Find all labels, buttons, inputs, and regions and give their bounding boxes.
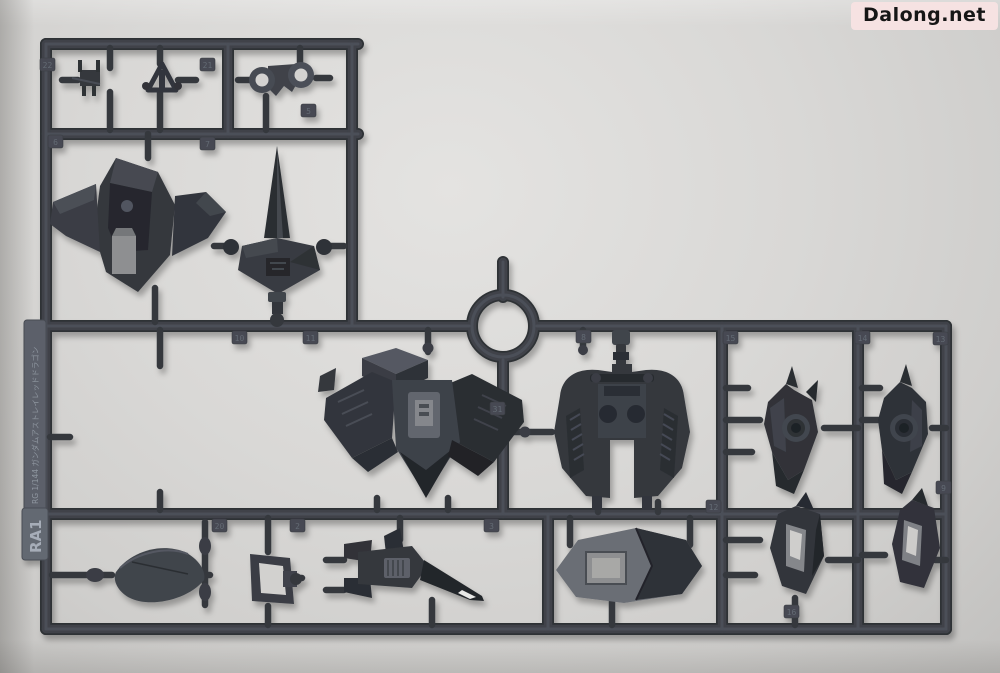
part-number-label: 8 [581,333,586,342]
part-small-bracket [72,60,100,96]
part-side-binder-right [878,364,928,494]
part-flight-wing-unit [318,348,524,498]
part-leg-armor-left [770,492,824,594]
part-small-trident [142,64,182,90]
part-number-label: 22 [43,61,53,70]
part-number-label: 12 [709,503,719,512]
part-sword-blade [223,146,332,327]
runner-sprue: RG 1/144 ガンダムアストレイレッドドラゴン RA1 [0,0,1000,673]
part-number-label: 21 [203,61,213,70]
part-number-label: 7 [205,140,210,149]
part-hex-plate [556,528,702,603]
part-number-label: 11 [306,334,316,343]
part-side-binder-left [764,366,818,494]
part-number-label: 5 [306,107,311,116]
part-number-label: 6 [53,138,58,147]
part-number-label: 20 [215,522,225,531]
runner-tag-id: RA1 [27,519,45,553]
part-dart-fighter [344,528,484,601]
watermark-text: Dalong.net [863,4,986,26]
part-frame-loop [250,554,302,604]
part-double-ring-joint [249,62,314,96]
part-number-label: 2 [295,522,300,531]
watermark-badge: Dalong.net [851,2,998,30]
runner-tag: RG 1/144 ガンダムアストレイレッドドラゴン RA1 [22,320,48,560]
part-number-label: 10 [235,334,245,343]
part-number-label: 14 [858,334,868,343]
part-number-label: 9 [941,484,946,493]
part-number-label: 31 [493,405,503,414]
sprue-photo: RG 1/144 ガンダムアストレイレッドドラゴン RA1 [0,0,1000,673]
part-number-label: 3 [489,522,494,531]
part-number-label: 15 [726,334,736,343]
part-chest-shield [50,158,226,292]
part-leaf-fin [115,548,205,602]
runner-kit-label: RG 1/144 ガンダムアストレイレッドドラゴン [30,347,40,504]
part-leg-armor-right [892,488,940,588]
part-number-label: 13 [936,335,946,344]
part-backpack [554,330,690,510]
part-number-label: 16 [787,608,797,617]
